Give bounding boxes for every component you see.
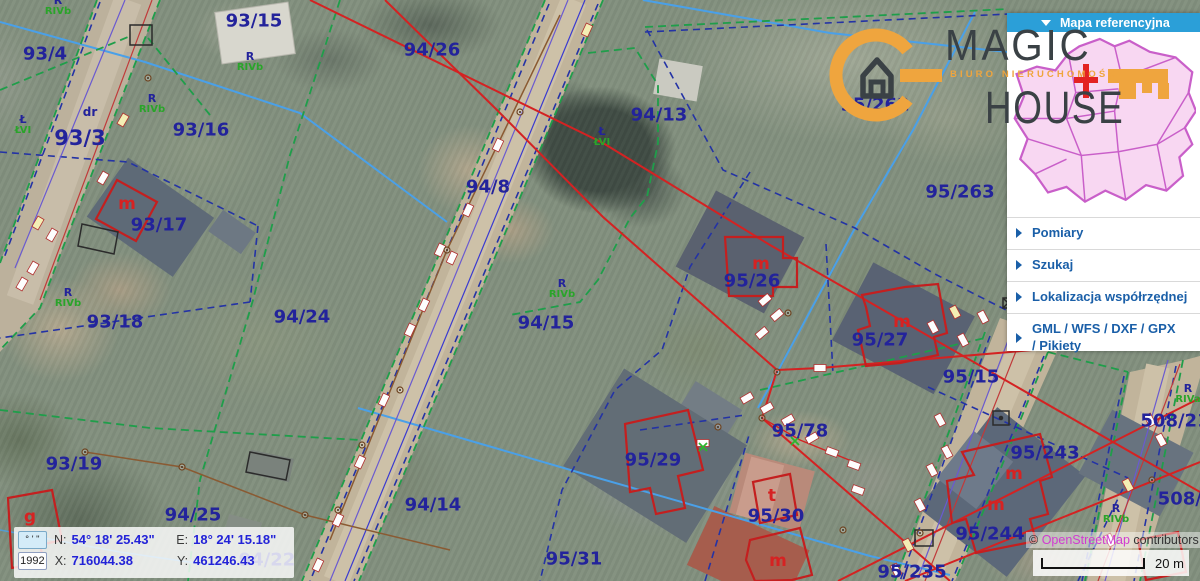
- sidebar-header-label: Mapa referencyjna: [1060, 16, 1170, 30]
- parcel-label: 93/18: [87, 312, 144, 333]
- parcel-label: 93/4: [23, 44, 67, 65]
- sidebar-panel: Mapa referencyjna Pomiar: [1007, 13, 1200, 351]
- crs-year-button[interactable]: 1992: [18, 552, 47, 570]
- soil-class-label: RRIVb: [237, 51, 263, 73]
- scalebar-widget: 20 m: [1033, 550, 1189, 576]
- pole-marker-dot: [446, 249, 448, 251]
- soil-class-label: RRIVb: [45, 0, 71, 17]
- chevron-right-icon: [1016, 228, 1022, 238]
- location-cross-icon: [1074, 77, 1098, 83]
- y-label: Y:: [173, 554, 188, 568]
- pole-marker-dot: [842, 529, 844, 531]
- sidebar-item-szukaj[interactable]: Szukaj: [1007, 250, 1200, 282]
- soil-class-label: RRIVb: [55, 287, 81, 309]
- utility-marker: [934, 413, 946, 427]
- sidebar-header-mapa-referencyjna[interactable]: Mapa referencyjna: [1007, 13, 1200, 32]
- parcel-label: 95/27: [852, 330, 909, 351]
- scalebar-label: 20 m: [1155, 556, 1184, 571]
- parcel-label: 95/243: [1010, 443, 1079, 464]
- building-type-label: m: [987, 495, 1005, 515]
- soil-class-label: ŁŁVI: [594, 126, 611, 148]
- osm-attribution: © OpenStreetMap contributors: [1026, 532, 1200, 548]
- sidebar-item-pomiary[interactable]: Pomiary: [1007, 218, 1200, 250]
- pole-marker-dot: [304, 514, 306, 516]
- utility-marker: [926, 463, 938, 477]
- soil-class-label: RRIVa: [1175, 383, 1200, 405]
- utility-marker: [97, 171, 109, 185]
- scalebar-graphic: [1041, 558, 1145, 569]
- utility-marker: [814, 365, 826, 372]
- n-label: N:: [52, 533, 67, 547]
- parcel-label: 94/24: [274, 307, 331, 328]
- utility-marker: [740, 392, 754, 404]
- pole-marker-dot: [776, 371, 778, 373]
- poland-overview-map[interactable]: [1007, 32, 1200, 217]
- sidebar-item-gml-wfs-dxf-gpx[interactable]: GML / WFS / DXF / GPX / Pikiety: [1007, 314, 1200, 362]
- soil-class-label: RRIVb: [549, 278, 575, 300]
- parcel-label: 93/15: [226, 11, 283, 32]
- parcel-label: 93/3: [54, 126, 106, 150]
- y-value: 461246.43: [193, 553, 290, 568]
- parcel-label: 95/29: [625, 450, 682, 471]
- building-type-label: g: [24, 507, 36, 527]
- building-type-label: m: [752, 254, 770, 274]
- pole-marker-dot: [337, 509, 339, 511]
- utility-marker: [825, 447, 839, 458]
- parcel-label: 94/15: [518, 313, 575, 334]
- sidebar-item-lokalizacja[interactable]: Lokalizacja współrzędnej: [1007, 282, 1200, 314]
- sidebar-menu: Pomiary Szukaj Lokalizacja współrzędnej …: [1007, 217, 1200, 361]
- n-value: 54° 18' 25.43": [72, 532, 169, 547]
- openstreetmap-link[interactable]: OpenStreetMap: [1042, 533, 1130, 547]
- parcel-label: 93/19: [46, 454, 103, 475]
- building-type-label: t: [768, 486, 776, 506]
- parcel-label: 95/244: [955, 524, 1024, 545]
- utility-marker: [847, 460, 861, 471]
- pole-marker-dot: [519, 111, 521, 113]
- coordinates-panel: ° ' " N: 54° 18' 25.43" E: 18° 24' 15.18…: [14, 527, 294, 578]
- parcel-label: 95/30: [748, 506, 805, 527]
- parcel-label: 95/262: [840, 95, 909, 116]
- utility-marker: [117, 113, 129, 127]
- parcel-label: 95/235: [877, 562, 946, 581]
- geoportal-app: 93/1593/494/2694/1395/26293/1693/393/179…: [0, 0, 1200, 581]
- utility-marker: [760, 402, 774, 414]
- chevron-right-icon: [1016, 260, 1022, 270]
- utility-marker: [914, 498, 926, 512]
- parcel-label: 94/13: [631, 105, 688, 126]
- pole-marker-dot: [181, 466, 183, 468]
- pole-marker-dot: [147, 77, 149, 79]
- utility-marker: [755, 326, 769, 339]
- parcel-label: 93/16: [173, 120, 230, 141]
- utility-marker: [977, 310, 989, 324]
- parcel-label: 95/31: [546, 549, 603, 570]
- building-type-label: m: [893, 312, 911, 332]
- pole-marker-dot: [1151, 479, 1153, 481]
- e-label: E:: [173, 533, 188, 547]
- dms-format-button[interactable]: ° ' ": [18, 531, 47, 549]
- soil-class-label: RRIVb: [1103, 503, 1129, 525]
- poland-map-graphic: [1011, 34, 1196, 214]
- pole-marker-dot: [399, 389, 401, 391]
- parcel-label: 93/17: [131, 215, 188, 236]
- chevron-down-icon: [1041, 20, 1051, 26]
- parcel-label: 94/25: [165, 505, 222, 526]
- parcel-label: 508/21: [1140, 411, 1200, 432]
- parcel-label: 94/26: [404, 40, 461, 61]
- building-type-label: m: [1005, 464, 1023, 484]
- utility-marker: [851, 485, 865, 496]
- parcel-label: 95/15: [943, 367, 1000, 388]
- pole-marker-dot: [717, 426, 719, 428]
- x-label: X:: [52, 554, 67, 568]
- parcel-label: 508/3: [1158, 489, 1200, 510]
- chevron-right-icon: [1016, 292, 1022, 302]
- pole-marker-dot: [787, 312, 789, 314]
- building-type-label: m: [769, 551, 787, 571]
- pole-marker-dot: [919, 532, 921, 534]
- pole-marker-dot: [761, 417, 763, 419]
- utility-marker: [697, 440, 709, 447]
- parcel-label: 94/14: [405, 495, 462, 516]
- copyright-symbol: ©: [1029, 533, 1042, 547]
- soil-class-label: RRIVb: [139, 93, 165, 115]
- building-type-label: m: [118, 194, 136, 214]
- parcel-label: 95/263: [925, 182, 994, 203]
- parcel-label: 94/8: [466, 177, 510, 198]
- road-label: dr: [83, 105, 98, 119]
- pole-marker-dot: [361, 444, 363, 446]
- e-value: 18° 24' 15.18": [193, 532, 290, 547]
- contributors-text: contributors: [1130, 533, 1199, 547]
- chevron-right-icon: [1016, 333, 1022, 343]
- utility-marker: [770, 308, 784, 321]
- x-value: 716044.38: [72, 553, 169, 568]
- parcel-label: 95/78: [772, 421, 829, 442]
- soil-class-label: ŁŁVI: [15, 114, 32, 136]
